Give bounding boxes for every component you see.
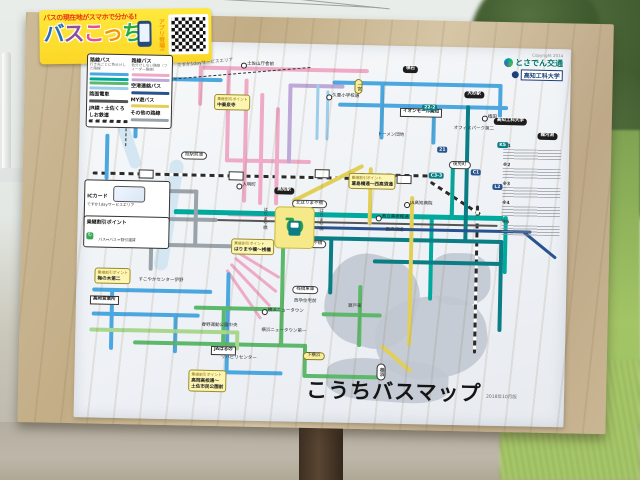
route-segment [287,84,293,164]
bus-stop: 県立美術館通 [376,215,409,220]
route-segment [322,312,382,317]
transfer-legend-desc: バス⇔バス＝割引運賃 [98,237,135,243]
ic-card-label: ICカード [87,193,108,199]
legend-item: MY遊バス [131,96,170,108]
legend-desc: 色分けしない路線（フィーダー路線） [131,64,170,73]
route-segment [230,263,272,308]
route-segment [315,84,319,140]
bus-stop: JAはるの [211,346,236,355]
kochi-tech-name: 高知工科大学 [521,69,563,81]
legend-column-2: 路線バス色分けしない路線（フィーダー路線）空港連絡バスMY遊バスその他の路線 [130,57,170,126]
route-segment [92,311,200,317]
route-segment [198,219,498,227]
bus-stop: すこやかセンター伊野 [138,278,183,284]
route-segment [174,209,504,221]
bus-stop: 龍河洞 [537,133,557,140]
legend-swatch [90,73,129,77]
route-segment [328,236,333,294]
bus-stop: 入明町 [236,183,256,188]
bus-stop: はりまや橋 [261,207,266,230]
route-segment [430,181,484,217]
transfer-point-icon: ↻ [86,232,93,239]
map-note: ※4 [502,201,560,217]
route-segment [498,84,503,118]
legend-item: JR線・土佐くろしお鉄道 [89,104,128,123]
route-segment [225,269,262,320]
legend-swatch [90,77,129,81]
bus-stop: トーメン団地 [377,133,404,138]
footnotes-block: ※1※2※3※4※5 [501,144,561,240]
bus-stop: 西高須通 [385,229,403,234]
bus-stop: 西孕住宅前 [294,300,317,305]
tosaden-logo-icon [504,58,513,67]
map-note: ※3 [502,182,560,198]
water-area [428,252,491,305]
jr-station-box [139,169,154,178]
bus-stop: 大杉駅 [464,91,484,98]
legend-swatch [89,82,128,86]
route-segment [105,134,110,180]
legend-column-1: 路線バス行き先ごとに色分けした路線路面電車JR線・土佐くろしお鉄道 [89,56,129,125]
route-badge: C1 [471,169,482,175]
water-area [315,244,429,358]
route-segment [292,226,532,234]
route-segment [373,259,503,266]
jr-station-box [315,169,330,178]
outdoor-photo-scene: バスの現在地がスマホで分かる! バスこっち アプリ登場! ですか1dayサービス… [0,0,640,480]
route-segment [302,344,307,376]
bus-stop: 旭駅前通 [181,151,207,159]
kochi-tech-logo-icon [512,71,519,78]
map-note: ※5 [501,220,559,236]
utility-pole [2,52,11,177]
route-segment [357,285,362,347]
bus-stop: 桟橋車庫 [292,286,318,294]
transfer-callout: 乗継割引ポイントはりまや橋～桟橋 [231,238,274,255]
smartphone-icon [137,21,151,47]
route-badge: K5 [497,142,508,148]
bus-stop: 横浜ニュータウン [262,309,304,315]
poster-title: こうちバスマップ [306,374,482,408]
transfer-legend-label: 乗継割引ポイント [87,218,167,227]
bus-stop: 横浜ニュータウン第一 [261,329,306,335]
route-segment [193,190,198,248]
route-segment [236,251,280,279]
map-note: ※1 [503,144,561,160]
jr-station-box [396,175,411,184]
bus-stop: 下横浜 [303,352,325,360]
tram-icon [288,220,300,235]
route-segment [428,215,434,301]
ic-service-area: ですか1dayサービスエリア [87,201,167,209]
bus-stop: 高岡営業所 [90,295,119,304]
route-segment [92,287,212,294]
water-area [371,290,492,385]
legend-item: 空港連絡バス [131,83,170,95]
bus-stop: 春野運動公園中央 [201,324,237,329]
route-legend: 路線バス行き先ごとに色分けした路線路面電車JR線・土佐くろしお鉄道 路線バス色分… [86,53,174,129]
qr-code-icon [168,14,209,55]
route-segment [473,205,479,353]
tosaden-name: とさでん交通 [515,57,563,69]
harimayabashi-hub: ↻ [274,206,315,249]
transfer-callout: 乗継割引ポイント葛島橋通～西高須通 [348,173,396,190]
legend-swatch [131,74,170,78]
legend-item: 路面電車 [89,91,128,103]
jr-station-box [229,171,244,180]
route-badge: 22-2 [422,104,437,110]
ic-card-icon [113,185,145,202]
bus-stop: オフィスパーク第二 [454,127,495,133]
bus-stop: 高知工科大学 [494,118,527,125]
route-segment [258,93,264,205]
legend-swatch [89,86,128,90]
bus-stop: 後免町 [449,161,471,169]
route-segment [225,66,231,162]
bus-stop: 久重小学校通 [326,94,359,99]
route-segment [224,370,282,375]
publisher-credits: Copyright 2014 とさでん交通 高知工科大学 [504,52,564,81]
bus-stop: 土佐山庁舎前 [241,63,274,68]
route-badge: C3-3 [429,172,445,178]
legend-swatch [131,78,170,82]
route-segment [379,81,384,139]
route-segment [497,240,503,332]
legend-desc: 行き先ごとに色分けした路線 [90,63,129,72]
bus-stop: はりまや橋 [317,208,322,231]
route-segment [234,257,278,293]
route-badge: L2 [492,184,502,190]
route-segment [288,84,344,89]
bus-stop: 瀬戸東 [348,305,362,310]
bus-stop: リハビリセンター [221,356,257,361]
route-segment [450,167,455,219]
transfer-discount-legend: 乗継割引ポイント ↻ バス⇔バス＝割引運賃 [83,215,170,249]
bus-map-poster: ですか1dayサービスエリア ↻ ※1※2※3※4※5 土佐山庁舎前久重小学校通… [74,39,572,427]
plywood-signboard: バスの現在地がスマホで分かる! バスこっち アプリ登場! ですか1dayサービス… [17,12,613,434]
transfer-callout: 乗継割引ポイント高岡高校通～土佐市民公園前 [188,369,227,392]
route-segment [225,158,311,164]
transfer-callout: 乗継割引ポイント梅の木第二 [94,267,131,284]
route-segment [93,171,353,179]
bus-stop: 高知駅 [274,187,294,194]
bus-stop: 一宮 [354,79,362,94]
banner-subtext: アプリ登場! [156,19,166,59]
edition-date: 2018年10月版 [486,394,517,401]
bus-stop: 領石 [403,66,418,73]
route-segment [198,66,203,106]
bus-stop: JA高知病院 [404,202,432,207]
transfer-callout: 乗継割引ポイント中秦泉寺 [214,94,251,111]
map-note: ※2 [503,163,561,179]
legend-item: その他の路線 [130,110,169,122]
route-segment [173,313,178,353]
route-badge: 21 [437,147,447,153]
